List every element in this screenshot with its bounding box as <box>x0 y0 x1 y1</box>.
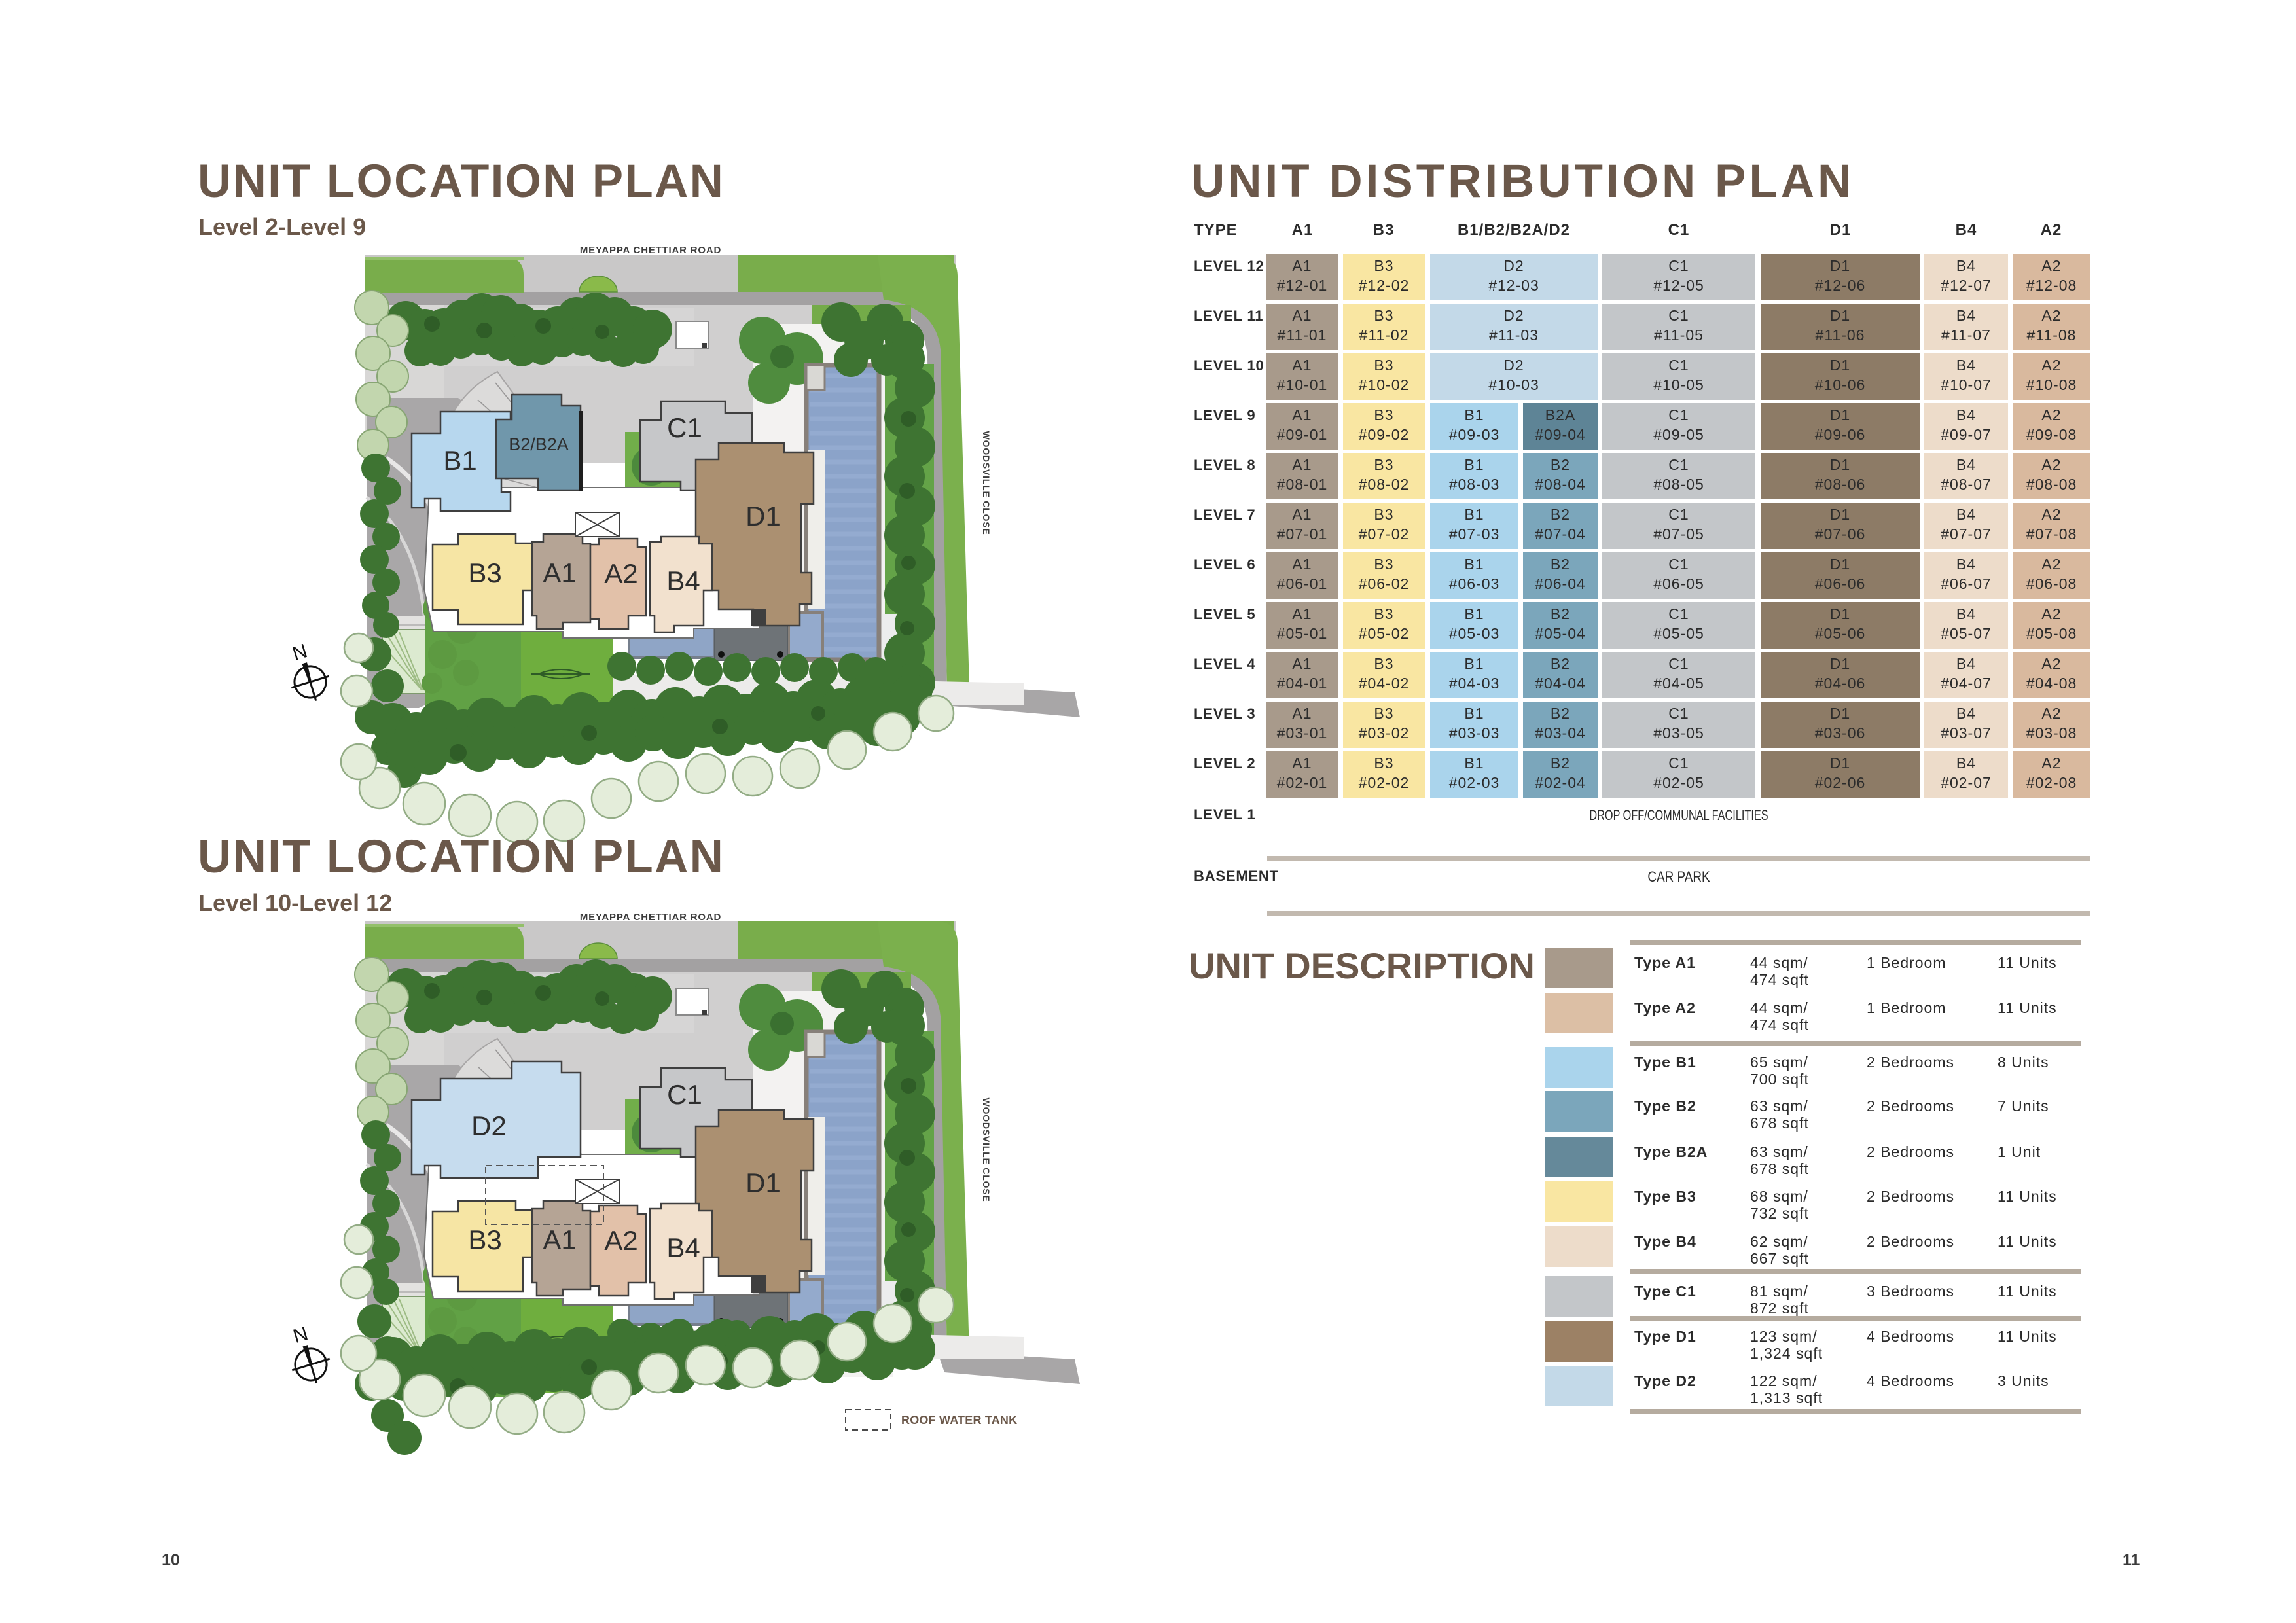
svg-text:A2: A2 <box>604 1225 637 1256</box>
svg-text:C1: C1 <box>667 1079 702 1110</box>
svg-text:ROOF WATER TANK: ROOF WATER TANK <box>901 1414 1017 1427</box>
svg-text:D1: D1 <box>745 1168 781 1198</box>
svg-text:B3: B3 <box>468 1224 501 1255</box>
svg-text:MEYAPPA CHETTIAR ROAD: MEYAPPA CHETTIAR ROAD <box>580 912 721 923</box>
svg-text:B4: B4 <box>666 1232 700 1263</box>
svg-text:D2: D2 <box>471 1111 507 1141</box>
svg-text:A1: A1 <box>543 1224 576 1255</box>
svg-text:WOODSVILLE CLOSE: WOODSVILLE CLOSE <box>981 1097 992 1202</box>
